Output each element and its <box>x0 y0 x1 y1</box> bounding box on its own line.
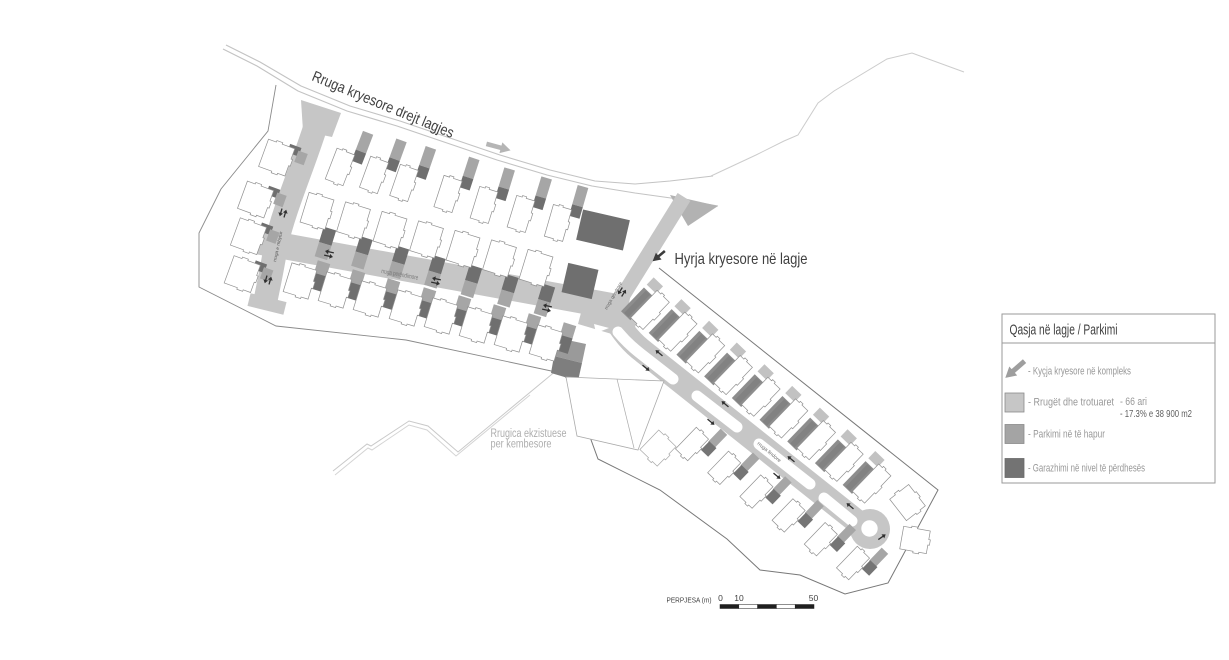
svg-text:- Parkimi në të hapur: - Parkimi në të hapur <box>1028 429 1105 441</box>
svg-text:PERPJESA (m): PERPJESA (m) <box>667 596 712 605</box>
svg-text:50: 50 <box>809 593 819 603</box>
svg-text:Qasja në lagje / Parkimi: Qasja në lagje / Parkimi <box>1010 322 1118 339</box>
svg-text:- 17.3% e 38 900 m2: - 17.3% e 38 900 m2 <box>1120 408 1192 420</box>
svg-text:per kembesore: per kembesore <box>491 439 552 451</box>
svg-text:10: 10 <box>734 593 744 603</box>
svg-text:- Rrugët dhe trotuaret: - Rrugët dhe trotuaret <box>1028 397 1114 409</box>
svg-text:- 66 ari: - 66 ari <box>1120 396 1147 408</box>
svg-text:Hyrja kryesore në lagje: Hyrja kryesore në lagje <box>675 251 808 268</box>
svg-text:- Garazhimi në nivel të përdhe: - Garazhimi në nivel të përdhesës <box>1028 463 1145 475</box>
svg-text:- Kyçja kryesore në kompleks: - Kyçja kryesore në kompleks <box>1028 366 1131 378</box>
svg-text:0: 0 <box>718 593 723 603</box>
